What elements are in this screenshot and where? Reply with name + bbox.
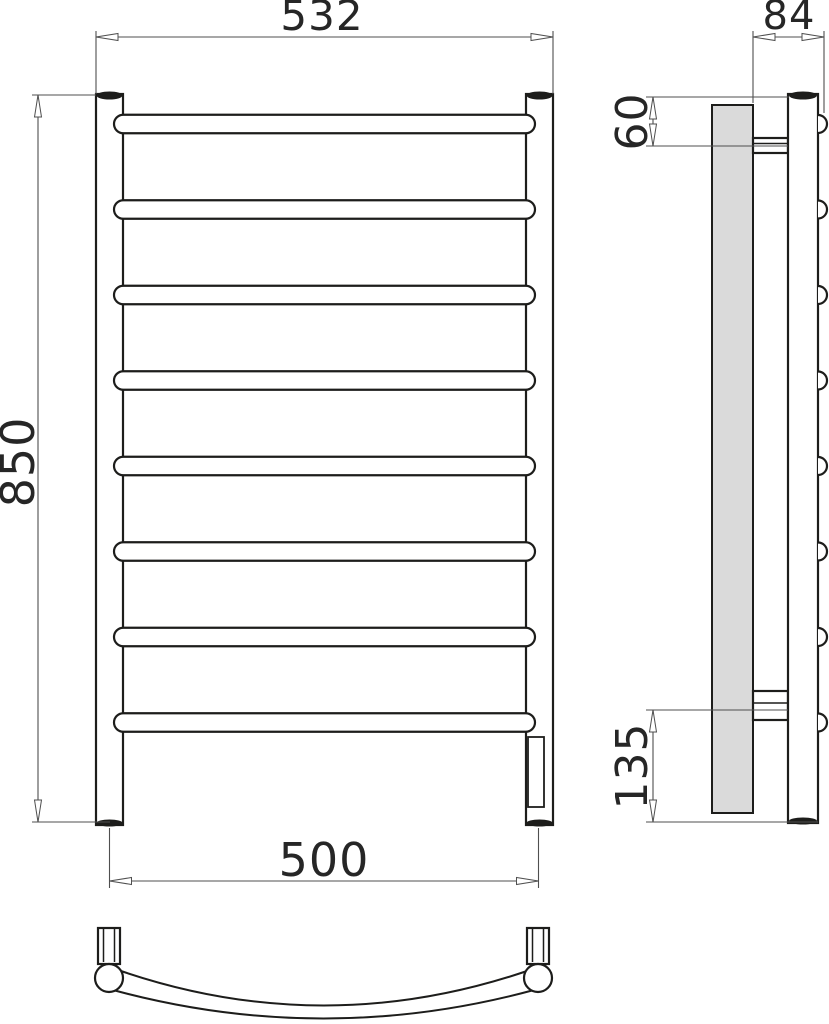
curved-rung-front-edge — [121, 971, 527, 1006]
dimension-overall-height: 850 — [0, 95, 110, 822]
rung-bulge — [818, 286, 827, 304]
dimension-overall-width: 532 — [96, 0, 553, 94]
dim-text-532: 532 — [280, 0, 363, 40]
side-post-top-cap — [789, 92, 817, 100]
arrowhead — [96, 34, 118, 41]
bottom-view — [95, 928, 552, 1019]
dim-text-135: 135 — [607, 723, 658, 810]
heater-element — [528, 737, 544, 807]
technical-drawing-page: 532 84 850 500 60 — [0, 0, 829, 1024]
post-bottom-cap — [527, 820, 553, 827]
rungs — [114, 115, 535, 732]
rung — [114, 371, 535, 390]
rung-bulge — [818, 543, 827, 561]
rung — [114, 628, 535, 647]
rung-bulge — [818, 372, 827, 390]
dim-text-84: 84 — [763, 0, 816, 39]
bottom-view-left-elbow — [95, 964, 123, 992]
rung — [114, 200, 535, 219]
side-view — [712, 92, 827, 825]
rung — [114, 286, 535, 305]
post-bottom-cap — [97, 820, 123, 827]
bottom-view-right-elbow — [524, 964, 552, 992]
dimension-mounting-width: 500 — [110, 828, 539, 888]
wall-plate — [712, 105, 753, 813]
rung — [114, 542, 535, 561]
dim-text-500: 500 — [279, 833, 370, 887]
rung — [114, 115, 535, 134]
rung-bulge — [818, 115, 827, 133]
dim-text-60: 60 — [607, 93, 658, 151]
bottom-view-right-post-tube — [527, 928, 549, 964]
side-post — [788, 94, 818, 823]
dim-text-850: 850 — [0, 417, 45, 508]
rung-bulge — [818, 628, 827, 646]
curved-rung-back-edge — [113, 990, 534, 1019]
arrowhead — [35, 95, 42, 117]
post-top-cap — [97, 92, 123, 100]
front-view — [96, 92, 553, 827]
rung — [114, 713, 535, 732]
post-top-cap — [527, 92, 553, 100]
rung — [114, 457, 535, 476]
rung-bulge — [818, 201, 827, 219]
rung-bulge — [818, 714, 827, 732]
dim-lines-532 — [96, 31, 553, 94]
rung-bulge — [818, 457, 827, 475]
arrowhead — [531, 34, 553, 41]
arrowhead — [110, 878, 132, 885]
bottom-view-left-post-tube — [98, 928, 120, 964]
side-post-bottom-cap — [789, 818, 817, 825]
towel-rail-drawing: 532 84 850 500 60 — [0, 0, 829, 1024]
rung-bulges — [818, 115, 827, 732]
arrowhead — [35, 800, 42, 822]
bottom-bracket — [753, 691, 788, 720]
arrowhead — [517, 878, 539, 885]
